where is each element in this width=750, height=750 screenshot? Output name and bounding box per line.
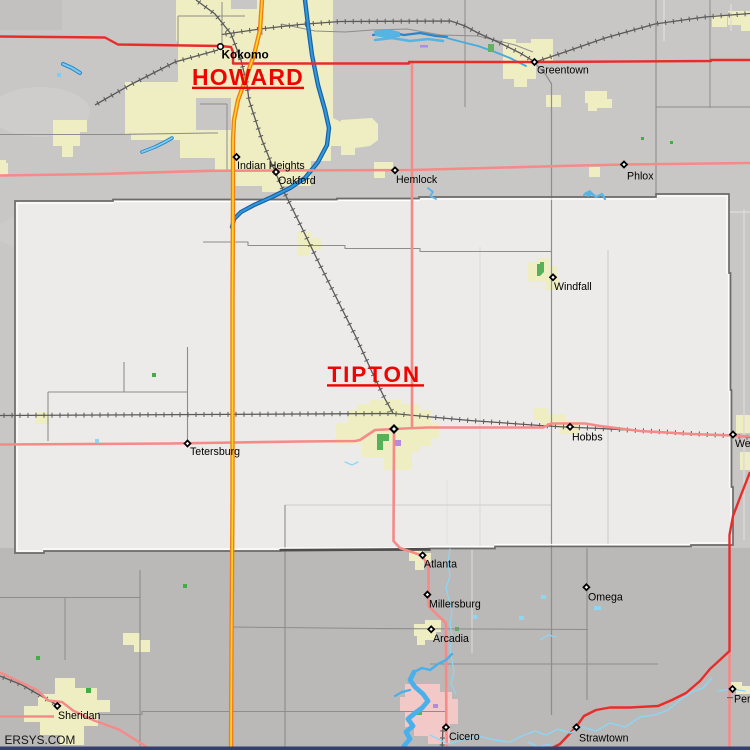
svg-text:Omega: Omega bbox=[588, 592, 623, 604]
svg-text:Windfall: Windfall bbox=[554, 281, 592, 293]
svg-text:Greentown: Greentown bbox=[537, 65, 589, 77]
svg-text:Millersburg: Millersburg bbox=[429, 599, 481, 611]
svg-text:Per: Per bbox=[734, 694, 750, 706]
svg-text:Hemlock: Hemlock bbox=[396, 174, 438, 186]
svg-text:TIPTON: TIPTON bbox=[328, 362, 422, 387]
svg-text:HOWARD: HOWARD bbox=[192, 64, 304, 90]
svg-text:Strawtown: Strawtown bbox=[579, 733, 629, 745]
svg-text:Oakford: Oakford bbox=[278, 175, 316, 187]
svg-text:Kokomo: Kokomo bbox=[222, 48, 269, 62]
svg-text:Hobbs: Hobbs bbox=[572, 432, 603, 444]
svg-text:Tetersburg: Tetersburg bbox=[190, 446, 240, 458]
svg-text:Sheridan: Sheridan bbox=[58, 710, 101, 722]
svg-text:ERSYS.COM: ERSYS.COM bbox=[5, 733, 76, 747]
svg-text:We: We bbox=[735, 438, 750, 450]
svg-text:Arcadia: Arcadia bbox=[433, 633, 469, 645]
svg-text:Cicero: Cicero bbox=[449, 731, 480, 743]
svg-text:Phlox: Phlox bbox=[627, 171, 654, 183]
svg-text:Indian Heights: Indian Heights bbox=[237, 160, 305, 172]
svg-text:Atlanta: Atlanta bbox=[424, 559, 457, 571]
